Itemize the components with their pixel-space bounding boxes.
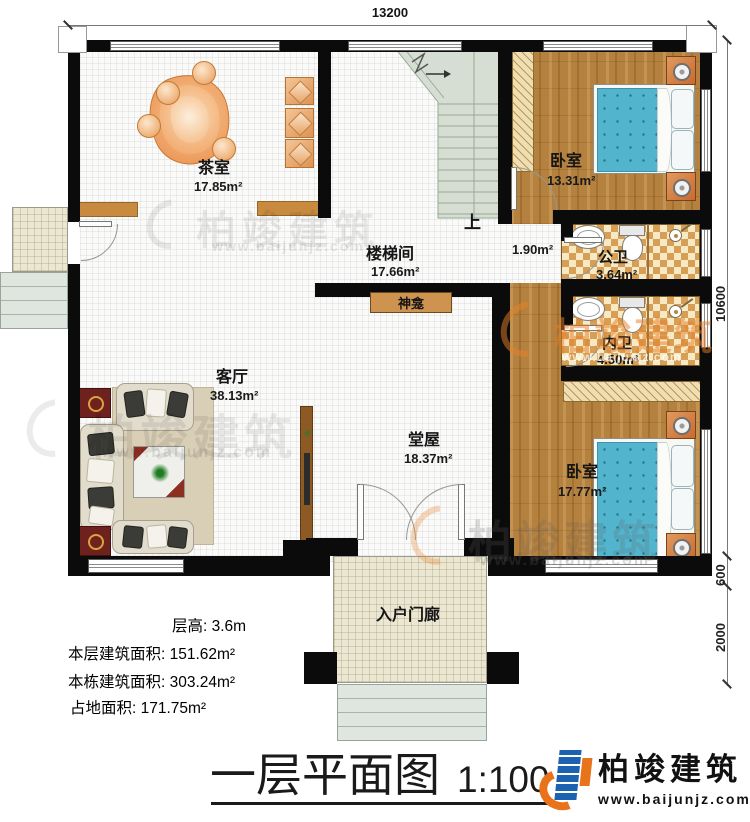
porch-column-right <box>487 652 519 684</box>
window <box>88 559 184 573</box>
sofa-cushion <box>87 432 115 457</box>
entry-porch-steps <box>337 684 487 741</box>
brand-name: 柏竣建筑 <box>598 753 742 787</box>
tea-chair <box>285 139 314 168</box>
nightstand <box>666 411 696 439</box>
room-area-bedroom-top: 13.31m² <box>547 173 595 188</box>
stat-floor-area: 本层建筑面积: 151.62m² <box>68 646 235 663</box>
wall-post <box>283 540 329 568</box>
room-label-bedroom-bottom: 卧室 <box>566 464 598 482</box>
shrine-label: 神龛 <box>398 293 424 312</box>
sink <box>571 297 605 321</box>
tea-chair <box>285 77 314 105</box>
window <box>348 41 462 51</box>
wall-innerbath-bottom <box>561 366 702 381</box>
sofa-cushion <box>122 525 144 549</box>
tv-screen <box>304 453 310 505</box>
shower-head <box>669 229 682 242</box>
sofa-cushion <box>146 524 168 549</box>
stat-total-area: 本栋建筑面积: 303.24m² <box>68 674 235 691</box>
room-label-tea: 茶室 <box>198 160 230 178</box>
dimension-width: 13200 <box>350 6 430 20</box>
wall-bedroom-bath <box>553 210 702 224</box>
sofa-cushion <box>167 526 188 549</box>
sheet-scale: 1:100 <box>457 760 550 801</box>
side-table-medallion <box>88 534 104 550</box>
tea-stool <box>156 81 180 105</box>
sofa-cushion <box>86 458 115 484</box>
tea-stool <box>212 137 236 161</box>
side-porch-steps <box>0 272 68 329</box>
floor-plan-page: 神龛 茶室 17.85m² 楼梯间 17.66m² 上 1.90m² 卧室 13… <box>0 0 750 822</box>
room-label-hall: 堂屋 <box>408 432 440 450</box>
nightstand <box>666 172 696 201</box>
wall-stair-bedroom <box>498 40 512 224</box>
room-area-public-bath: 3.64m² <box>596 267 637 282</box>
stat-footprint-area: 占地面积: 171.75m² <box>70 700 206 717</box>
logo-building-accent <box>580 758 593 786</box>
brand-logo-icon <box>541 750 593 814</box>
sheet-title: 一层平面图 <box>210 750 440 801</box>
console-table <box>78 202 138 217</box>
pillow <box>671 89 694 129</box>
room-label-living: 客厅 <box>216 369 248 387</box>
wall-tea-stair <box>318 40 331 218</box>
porch-column-left <box>304 652 337 684</box>
pillow <box>671 445 694 487</box>
room-label-bedroom-top: 卧室 <box>550 153 582 171</box>
wall-hall-bedroom <box>492 283 510 558</box>
wardrobe-top <box>512 48 534 172</box>
tea-chair <box>285 108 314 138</box>
room-area-bedroom-bottom: 17.77m² <box>558 484 606 499</box>
tea-stool <box>192 61 216 85</box>
sofa-cushion <box>88 505 115 526</box>
room-label-public-bath: 公卫 <box>598 250 628 267</box>
dimension-line-top <box>68 25 712 26</box>
sofa-cushion <box>166 391 189 419</box>
wall-left <box>68 40 80 576</box>
window <box>110 41 280 51</box>
window <box>543 41 653 51</box>
bed-top-mattress <box>597 88 659 172</box>
dimension-offset: 600 <box>713 564 728 586</box>
side-porch-tile <box>12 207 68 272</box>
sofa-cushion <box>123 390 145 418</box>
window <box>701 89 711 172</box>
shower-head <box>669 305 682 318</box>
room-area-inner-bath: 4.50m² <box>597 352 638 367</box>
bed-top-sheet-fold <box>657 88 672 172</box>
toilet-bowl <box>622 307 643 333</box>
side-table <box>78 526 111 556</box>
stat-floor-height: 层高: 3.6m <box>172 618 246 635</box>
pillow <box>671 488 694 530</box>
shower-divider <box>647 224 649 280</box>
sofa-top <box>116 383 194 431</box>
tea-stool <box>137 114 161 138</box>
corridor-floor <box>510 283 565 558</box>
shower-divider <box>647 296 649 366</box>
dimension-height: 10600 <box>713 286 728 322</box>
window <box>701 303 711 348</box>
side-table-medallion <box>88 396 104 412</box>
room-area-living: 38.13m² <box>210 388 258 403</box>
hallway-area: 1.90m² <box>512 242 553 257</box>
room-area-hall: 18.37m² <box>404 451 452 466</box>
room-label-inner-bath: 内卫 <box>602 336 632 353</box>
sofa-cushion <box>145 388 167 417</box>
stairs-up-label: 上 <box>464 214 481 233</box>
table-plant <box>150 464 170 482</box>
corner-marker <box>686 25 717 53</box>
tv-plant <box>304 429 311 437</box>
side-table <box>78 388 111 418</box>
nightstand <box>666 56 696 85</box>
room-area-tea: 17.85m² <box>194 179 242 194</box>
room-area-stairhall: 17.66m² <box>371 264 419 279</box>
console-table <box>257 201 319 216</box>
side-door-opening <box>68 222 80 264</box>
shrine-cabinet: 神龛 <box>370 292 452 313</box>
corner-marker <box>58 26 87 53</box>
window <box>701 429 711 554</box>
room-label-porch: 入户门廊 <box>376 607 440 625</box>
dimension-porch: 2000 <box>713 623 728 652</box>
coffee-table <box>133 446 185 498</box>
sofa-left <box>80 424 124 530</box>
room-label-stairhall: 楼梯间 <box>366 246 414 264</box>
title-underline <box>211 802 551 805</box>
window <box>545 559 658 573</box>
wardrobe-bottom <box>563 381 702 402</box>
window <box>701 229 711 277</box>
sofa-bottom <box>112 520 194 554</box>
pillow <box>671 130 694 170</box>
bed-bottom-mattress <box>597 442 659 558</box>
tv-panel <box>300 406 313 544</box>
brand-url: www.baijunjz.com <box>598 792 750 807</box>
staircase <box>392 46 512 220</box>
